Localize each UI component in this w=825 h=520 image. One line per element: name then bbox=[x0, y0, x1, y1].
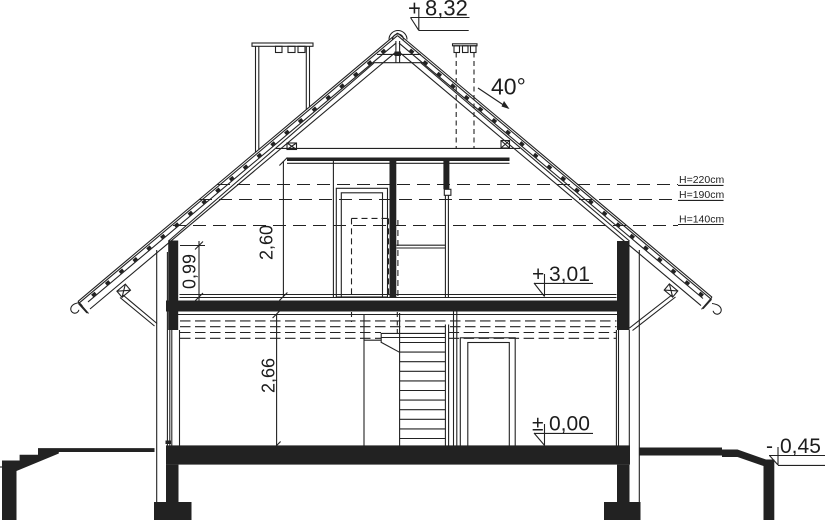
svg-text:40°: 40° bbox=[491, 74, 526, 100]
svg-text:H=220cm: H=220cm bbox=[679, 174, 724, 186]
svg-text:3,01: 3,01 bbox=[549, 263, 590, 286]
svg-text:8,32: 8,32 bbox=[425, 0, 468, 21]
svg-text:H=190cm: H=190cm bbox=[679, 189, 724, 201]
svg-text:-: - bbox=[766, 435, 773, 458]
svg-text:0,00: 0,00 bbox=[549, 413, 590, 436]
svg-text:2,60: 2,60 bbox=[257, 225, 277, 260]
svg-text:+: + bbox=[408, 0, 421, 21]
svg-text:H=140cm: H=140cm bbox=[679, 214, 724, 226]
svg-text:0,99: 0,99 bbox=[180, 254, 200, 289]
svg-text:0,45: 0,45 bbox=[780, 435, 821, 458]
svg-text:±: ± bbox=[532, 413, 544, 436]
svg-text:+: + bbox=[532, 263, 544, 286]
svg-text:2,66: 2,66 bbox=[259, 358, 279, 393]
